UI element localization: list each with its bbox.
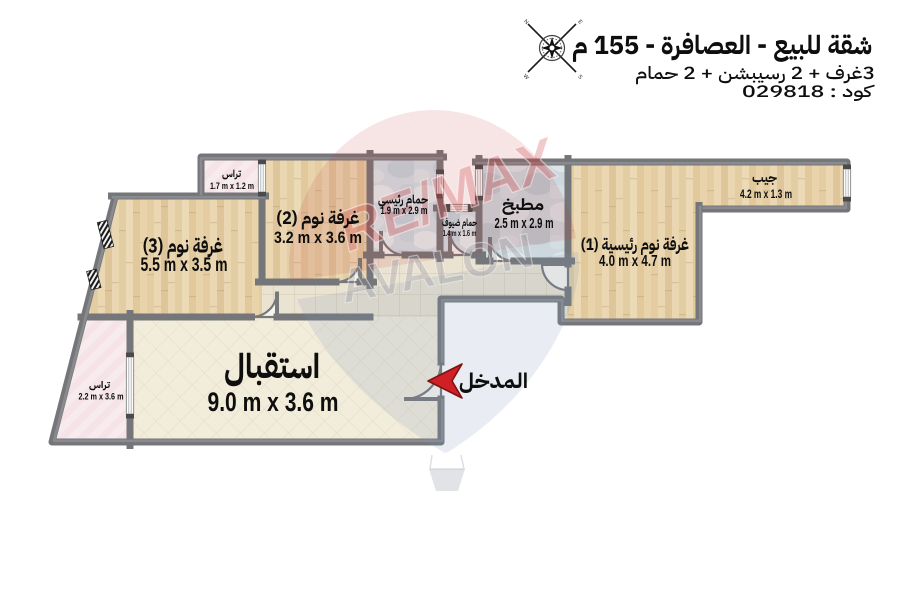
svg-text:9.0 m x 3.6 m: 9.0 m x 3.6 m bbox=[208, 387, 339, 417]
svg-text:1.9 m x 2.9 m: 1.9 m x 2.9 m bbox=[381, 205, 428, 217]
svg-text:2.5 m x 2.9 m: 2.5 m x 2.9 m bbox=[495, 216, 554, 232]
svg-text:1.4 m x 1.6 m: 1.4 m x 1.6 m bbox=[443, 228, 477, 238]
svg-text:4.2 m x 1.3 m: 4.2 m x 1.3 m bbox=[740, 189, 792, 201]
svg-text:4.0 m x 4.7 m: 4.0 m x 4.7 m bbox=[599, 253, 671, 270]
svg-text:2.2 m x 3.6 m: 2.2 m x 3.6 m bbox=[79, 392, 124, 402]
svg-text:3.2 m x 3.6 m: 3.2 m x 3.6 m bbox=[274, 228, 362, 247]
svg-text:1.7 m x 1.2 m: 1.7 m x 1.2 m bbox=[210, 181, 254, 192]
svg-text:5.5 m x 3.5 m: 5.5 m x 3.5 m bbox=[141, 255, 228, 276]
